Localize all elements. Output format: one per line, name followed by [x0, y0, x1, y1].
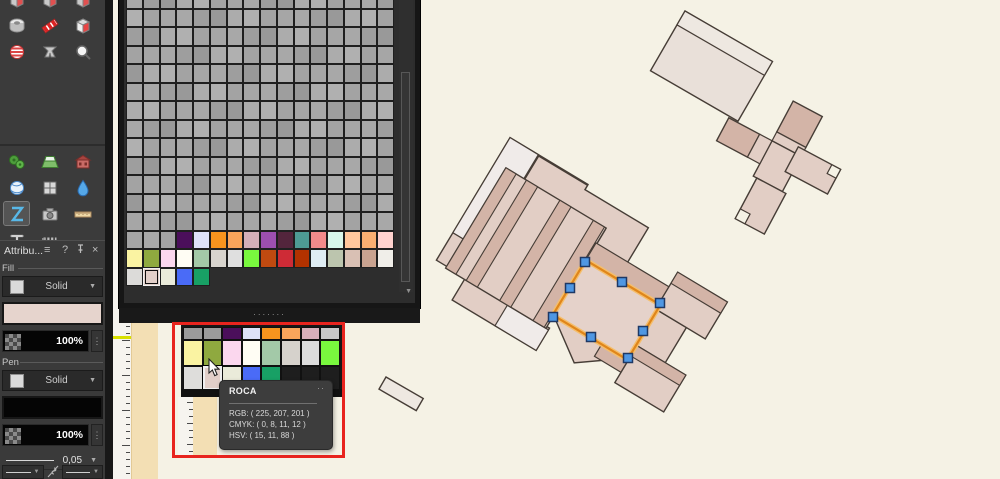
palette-swatch[interactable] [126, 9, 143, 28]
palette-swatch[interactable] [310, 231, 327, 250]
palette-swatch[interactable] [327, 0, 344, 9]
palette-swatch[interactable] [377, 157, 394, 176]
inset-swatch [301, 340, 321, 366]
palette-swatch[interactable] [210, 83, 227, 102]
palette-swatch[interactable] [227, 64, 244, 83]
palette-swatch[interactable] [327, 83, 344, 102]
palette-swatch[interactable] [260, 9, 277, 28]
palette-swatch[interactable] [160, 268, 177, 287]
palette-swatch[interactable] [160, 64, 177, 83]
building-large-rect[interactable] [651, 11, 773, 121]
fill-opacity-field[interactable]: 100% [2, 330, 89, 352]
palette-swatch[interactable] [227, 249, 244, 268]
palette-swatch[interactable] [377, 0, 394, 9]
palette-swatch[interactable] [176, 194, 193, 213]
palette-swatch[interactable] [176, 83, 193, 102]
palette-swatch[interactable] [243, 175, 260, 194]
palette-swatch[interactable] [327, 249, 344, 268]
palette-swatch[interactable] [277, 175, 294, 194]
camera-icon[interactable] [37, 202, 62, 225]
palette-swatch[interactable] [193, 27, 210, 46]
palette-swatch[interactable] [243, 64, 260, 83]
palette-swatch[interactable] [193, 175, 210, 194]
palette-swatch[interactable] [227, 83, 244, 102]
palette-swatch[interactable] [277, 194, 294, 213]
palette-swatch[interactable] [160, 83, 177, 102]
palette-swatch[interactable] [327, 101, 344, 120]
ribbon-icon[interactable] [37, 14, 62, 37]
palette-swatch[interactable] [143, 64, 160, 83]
palette-swatch[interactable] [260, 64, 277, 83]
palette-swatch[interactable] [210, 27, 227, 46]
palette-swatch[interactable] [344, 46, 361, 65]
zoom-search-icon[interactable] [70, 40, 95, 63]
color-tooltip: ROCA ·· RGB: ( 225, 207, 201 ) CMYK: ( 0… [219, 380, 333, 450]
palette-swatch[interactable] [344, 194, 361, 213]
palette-swatch[interactable] [294, 101, 311, 120]
pen-color-bar[interactable] [2, 396, 103, 419]
palette-swatch[interactable] [344, 157, 361, 176]
palette-swatch[interactable] [143, 231, 160, 250]
palette-swatch[interactable] [260, 27, 277, 46]
globe-icon[interactable] [4, 176, 29, 199]
palette-swatch[interactable] [327, 157, 344, 176]
palette-swatch[interactable] [143, 212, 160, 231]
palette-swatch[interactable] [176, 157, 193, 176]
palette-swatch[interactable] [361, 231, 378, 250]
palette-swatch[interactable] [143, 0, 160, 9]
palette-swatch[interactable] [361, 101, 378, 120]
cube-icon[interactable] [4, 0, 29, 11]
palette-swatch[interactable] [344, 9, 361, 28]
palette-swatch[interactable] [210, 9, 227, 28]
palette-swatch[interactable] [243, 138, 260, 157]
palette-swatch[interactable] [294, 138, 311, 157]
palette-swatch[interactable] [294, 64, 311, 83]
palette-swatch[interactable] [160, 175, 177, 194]
palette-swatch[interactable] [310, 175, 327, 194]
cube-icon[interactable] [70, 0, 95, 11]
palette-swatch[interactable] [344, 83, 361, 102]
palette-swatch[interactable] [327, 64, 344, 83]
attributes-header: Attribu... ≡ ? × [0, 243, 105, 259]
palette-swatch[interactable] [277, 9, 294, 28]
palette-swatch[interactable] [277, 46, 294, 65]
terrain-icon[interactable] [37, 150, 62, 173]
palette-swatch[interactable] [327, 212, 344, 231]
palette-swatch[interactable] [227, 194, 244, 213]
palette-swatch[interactable] [243, 212, 260, 231]
palette-swatch[interactable] [277, 231, 294, 250]
palette-swatch[interactable] [294, 175, 311, 194]
palette-swatch[interactable] [260, 249, 277, 268]
palette-swatch[interactable] [143, 249, 160, 268]
palette-swatch[interactable] [310, 9, 327, 28]
palette-swatch[interactable] [210, 101, 227, 120]
palette-swatch[interactable] [160, 231, 177, 250]
palette-swatch[interactable] [227, 231, 244, 250]
palette-swatch[interactable] [294, 231, 311, 250]
palette-swatch[interactable] [260, 83, 277, 102]
palette-swatch[interactable] [294, 157, 311, 176]
palette-swatch[interactable] [294, 249, 311, 268]
palette-swatch[interactable] [294, 46, 311, 65]
palette-swatch[interactable] [361, 27, 378, 46]
palette-swatch[interactable] [176, 138, 193, 157]
palette-swatch[interactable] [243, 46, 260, 65]
pen-opacity-menu-button[interactable]: ⋮ [91, 424, 103, 446]
palette-swatch[interactable] [327, 194, 344, 213]
scrollbar-down-arrow[interactable]: ▼ [405, 288, 412, 295]
palette-swatch[interactable] [377, 249, 394, 268]
palette-swatch[interactable] [143, 83, 160, 102]
palette-swatch[interactable] [361, 175, 378, 194]
palette-swatch[interactable] [126, 268, 143, 287]
palette-swatch[interactable] [227, 27, 244, 46]
palette-swatch[interactable] [260, 175, 277, 194]
menu-icon[interactable]: ≡ [44, 244, 50, 256]
selection-handle[interactable] [566, 284, 575, 293]
palette-swatch[interactable] [243, 231, 260, 250]
palette-swatch[interactable] [327, 138, 344, 157]
palette-swatch[interactable] [193, 46, 210, 65]
palette-swatch[interactable] [260, 46, 277, 65]
palette-swatch[interactable] [277, 212, 294, 231]
palette-swatch[interactable] [193, 9, 210, 28]
palette-swatch[interactable] [327, 175, 344, 194]
palette-swatch[interactable] [143, 120, 160, 139]
palette-swatch[interactable] [243, 120, 260, 139]
palette-swatch[interactable] [327, 9, 344, 28]
palette-swatch[interactable] [210, 64, 227, 83]
palette-swatch[interactable] [260, 212, 277, 231]
palette-swatch[interactable] [310, 101, 327, 120]
palette-swatch[interactable] [193, 249, 210, 268]
building-small-rect[interactable] [379, 377, 423, 411]
palette-swatch[interactable] [193, 268, 210, 287]
palette-swatch[interactable] [327, 120, 344, 139]
palette-swatch[interactable] [176, 231, 193, 250]
palette-swatch[interactable] [176, 120, 193, 139]
palette-swatch[interactable] [294, 212, 311, 231]
palette-swatch[interactable] [143, 9, 160, 28]
palette-swatch[interactable] [193, 0, 210, 9]
building-main-complex[interactable] [423, 138, 744, 423]
palette-swatch[interactable] [361, 9, 378, 28]
palette-swatch[interactable] [227, 9, 244, 28]
palette-swatch[interactable] [243, 83, 260, 102]
palette-swatch[interactable] [310, 120, 327, 139]
palette-swatch[interactable] [227, 46, 244, 65]
panel-drag-handle[interactable]: ······· [119, 308, 420, 323]
palette-swatch[interactable] [377, 231, 394, 250]
layout-grid-icon[interactable] [37, 176, 62, 199]
palette-swatch[interactable] [361, 46, 378, 65]
pen-opacity-field[interactable]: 100% [2, 424, 89, 446]
palette-swatch[interactable] [277, 0, 294, 9]
palette-swatch[interactable] [143, 101, 160, 120]
selected-color-swatch[interactable] [143, 268, 160, 287]
palette-swatch[interactable] [310, 27, 327, 46]
palette-swatch[interactable] [344, 101, 361, 120]
palette-swatch[interactable] [193, 138, 210, 157]
sphere-icon[interactable] [4, 40, 29, 63]
palette-swatch[interactable] [126, 175, 143, 194]
tape-roll-icon[interactable] [4, 14, 29, 37]
palette-swatch[interactable] [126, 231, 143, 250]
palette-swatch[interactable] [227, 212, 244, 231]
palette-swatch[interactable] [377, 101, 394, 120]
palette-swatch[interactable] [193, 101, 210, 120]
palette-swatch[interactable] [193, 64, 210, 83]
help-icon[interactable]: ? [62, 244, 68, 256]
palette-swatch[interactable] [193, 231, 210, 250]
palette-swatch[interactable] [227, 101, 244, 120]
palette-swatch[interactable] [243, 0, 260, 9]
palette-swatch[interactable] [126, 194, 143, 213]
palette-swatch[interactable] [310, 212, 327, 231]
palette-swatch[interactable] [126, 249, 143, 268]
palette-swatch[interactable] [310, 64, 327, 83]
palette-swatch[interactable] [361, 212, 378, 231]
palette-swatch[interactable] [277, 27, 294, 46]
palette-swatch[interactable] [126, 157, 143, 176]
palette-swatch[interactable] [344, 27, 361, 46]
palette-swatch[interactable] [126, 101, 143, 120]
palette-swatch[interactable] [310, 46, 327, 65]
palette-swatch[interactable] [361, 64, 378, 83]
pen-style-dropdown[interactable]: Solid ▼ [2, 370, 103, 391]
palette-swatch[interactable] [126, 212, 143, 231]
palette-swatch[interactable] [361, 194, 378, 213]
palette-swatch[interactable] [344, 138, 361, 157]
pin-icon[interactable] [76, 244, 85, 257]
palette-swatch[interactable] [227, 120, 244, 139]
palette-swatch[interactable] [361, 138, 378, 157]
palette-swatch[interactable] [294, 120, 311, 139]
palette-swatch[interactable] [243, 9, 260, 28]
palette-swatch[interactable] [260, 101, 277, 120]
palette-swatch[interactable] [310, 194, 327, 213]
palette-swatch[interactable] [327, 231, 344, 250]
palette-swatch[interactable] [243, 249, 260, 268]
palette-swatch[interactable] [126, 46, 143, 65]
palette-swatch[interactable] [126, 0, 143, 9]
palette-swatch[interactable] [143, 175, 160, 194]
palette-scrollbar[interactable] [399, 0, 413, 292]
ruler-icon[interactable] [70, 202, 95, 225]
palette-swatch[interactable] [310, 249, 327, 268]
close-icon[interactable]: × [92, 244, 98, 256]
line-style-link-icon [46, 465, 60, 478]
palette-swatch[interactable] [344, 212, 361, 231]
palette-swatch[interactable] [193, 212, 210, 231]
palette-swatch[interactable] [126, 83, 143, 102]
chevron-down-icon: ▼ [93, 469, 99, 475]
palette-swatch[interactable] [377, 83, 394, 102]
palette-swatch[interactable] [327, 46, 344, 65]
palette-swatch[interactable] [126, 27, 143, 46]
tooltip-more-icon[interactable]: ·· [317, 383, 325, 393]
palette-swatch[interactable] [277, 120, 294, 139]
palette-swatch[interactable] [160, 9, 177, 28]
palette-swatch[interactable] [377, 175, 394, 194]
palette-swatch[interactable] [176, 0, 193, 9]
palette-swatch[interactable] [310, 138, 327, 157]
palette-swatch[interactable] [277, 101, 294, 120]
selection-handle[interactable] [549, 313, 558, 322]
palette-swatch[interactable] [377, 46, 394, 65]
palette-swatch[interactable] [210, 157, 227, 176]
scrollbar-thumb[interactable] [401, 72, 410, 282]
palette-swatch[interactable] [294, 0, 311, 9]
selection-handle[interactable] [581, 258, 590, 267]
palette-swatch[interactable] [344, 249, 361, 268]
z-tool-icon[interactable] [4, 202, 29, 225]
palette-swatch[interactable] [143, 27, 160, 46]
palette-swatch[interactable] [160, 0, 177, 9]
palette-swatch[interactable] [227, 138, 244, 157]
palette-swatch[interactable] [277, 249, 294, 268]
palette-swatch[interactable] [310, 83, 327, 102]
palette-swatch[interactable] [260, 194, 277, 213]
palette-swatch[interactable] [176, 64, 193, 83]
palette-swatch[interactable] [361, 249, 378, 268]
line-end-dropdown[interactable]: ▼ [62, 465, 104, 479]
palette-swatch[interactable] [210, 0, 227, 9]
fill-style-dropdown[interactable]: Solid ▼ [2, 276, 103, 297]
palette-swatch[interactable] [210, 231, 227, 250]
palette-swatch[interactable] [294, 27, 311, 46]
palette-swatch[interactable] [210, 46, 227, 65]
palette-swatch[interactable] [227, 0, 244, 9]
palette-swatch[interactable] [243, 157, 260, 176]
palette-swatch[interactable] [344, 64, 361, 83]
palette-swatch[interactable] [377, 120, 394, 139]
line-sample-icon [6, 472, 31, 473]
selection-handle[interactable] [656, 299, 665, 308]
palette-swatch[interactable] [210, 175, 227, 194]
palette-swatch[interactable] [277, 138, 294, 157]
palette-swatch[interactable] [210, 212, 227, 231]
selection-handle[interactable] [587, 333, 596, 342]
palette-swatch[interactable] [361, 83, 378, 102]
palette-swatch[interactable] [210, 194, 227, 213]
palette-swatch[interactable] [260, 120, 277, 139]
palette-swatch[interactable] [143, 46, 160, 65]
palette-swatch[interactable] [160, 249, 177, 268]
fill-opacity-menu-button[interactable]: ⋮ [91, 330, 103, 352]
palette-swatch[interactable] [176, 175, 193, 194]
palette-swatch[interactable] [160, 157, 177, 176]
palette-swatch[interactable] [126, 120, 143, 139]
palette-swatch[interactable] [210, 120, 227, 139]
palette-swatch[interactable] [160, 101, 177, 120]
palette-swatch[interactable] [160, 120, 177, 139]
palette-swatch[interactable] [176, 46, 193, 65]
gears-icon[interactable] [4, 150, 29, 173]
palette-swatch[interactable] [143, 138, 160, 157]
cube-icon[interactable] [37, 0, 62, 11]
palette-swatch[interactable] [176, 268, 193, 287]
cube-red-icon[interactable] [70, 14, 95, 37]
palette-swatch[interactable] [277, 157, 294, 176]
palette-swatch[interactable] [176, 9, 193, 28]
palette-swatch[interactable] [344, 0, 361, 9]
palette-swatch[interactable] [260, 0, 277, 9]
palette-swatch[interactable] [160, 46, 177, 65]
palette-swatch[interactable] [193, 83, 210, 102]
palette-swatch[interactable] [193, 120, 210, 139]
palette-swatch[interactable] [160, 212, 177, 231]
droplet-icon[interactable] [70, 176, 95, 199]
line-start-dropdown[interactable]: ▼ [2, 465, 44, 479]
palette-swatch[interactable] [344, 120, 361, 139]
palette-swatch[interactable] [176, 212, 193, 231]
palette-swatch[interactable] [361, 120, 378, 139]
palette-swatch[interactable] [310, 0, 327, 9]
building-icon[interactable] [70, 150, 95, 173]
palette-swatch[interactable] [243, 101, 260, 120]
palette-swatch[interactable] [344, 175, 361, 194]
palette-swatch[interactable] [126, 138, 143, 157]
palette-swatch[interactable] [176, 249, 193, 268]
palette-swatch[interactable] [126, 64, 143, 83]
palette-swatch[interactable] [160, 27, 177, 46]
palette-swatch[interactable] [160, 138, 177, 157]
inset-swatch [222, 327, 242, 340]
palette-swatch[interactable] [294, 194, 311, 213]
selection-handle[interactable] [624, 354, 633, 363]
palette-swatch[interactable] [260, 157, 277, 176]
palette-swatch[interactable] [193, 194, 210, 213]
palette-swatch[interactable] [176, 101, 193, 120]
palette-swatch[interactable] [327, 27, 344, 46]
palette-swatch[interactable] [377, 138, 394, 157]
palette-swatch[interactable] [143, 157, 160, 176]
palette-swatch[interactable] [294, 9, 311, 28]
palette-swatch[interactable] [361, 157, 378, 176]
selection-handle[interactable] [618, 278, 627, 287]
palette-swatch[interactable] [377, 194, 394, 213]
palette-swatch[interactable] [227, 175, 244, 194]
palette-swatch[interactable] [277, 64, 294, 83]
palette-swatch[interactable] [227, 157, 244, 176]
palette-swatch[interactable] [361, 0, 378, 9]
palette-swatch[interactable] [243, 27, 260, 46]
palette-swatch[interactable] [243, 194, 260, 213]
palette-swatch[interactable] [377, 212, 394, 231]
palette-swatch[interactable] [193, 157, 210, 176]
palette-swatch[interactable] [344, 231, 361, 250]
palette-swatch[interactable] [260, 231, 277, 250]
palette-swatch[interactable] [294, 83, 311, 102]
palette-swatch[interactable] [377, 64, 394, 83]
clamp-icon[interactable] [37, 40, 62, 63]
palette-swatch[interactable] [260, 138, 277, 157]
palette-swatch[interactable] [210, 138, 227, 157]
fill-color-bar[interactable] [2, 302, 103, 325]
palette-swatch[interactable] [377, 9, 394, 28]
palette-swatch[interactable] [377, 27, 394, 46]
selection-handle[interactable] [639, 327, 648, 336]
palette-swatch[interactable] [160, 194, 177, 213]
palette-swatch[interactable] [277, 83, 294, 102]
palette-swatch[interactable] [176, 27, 193, 46]
palette-swatch[interactable] [310, 157, 327, 176]
palette-swatch[interactable] [210, 249, 227, 268]
palette-swatch[interactable] [143, 194, 160, 213]
